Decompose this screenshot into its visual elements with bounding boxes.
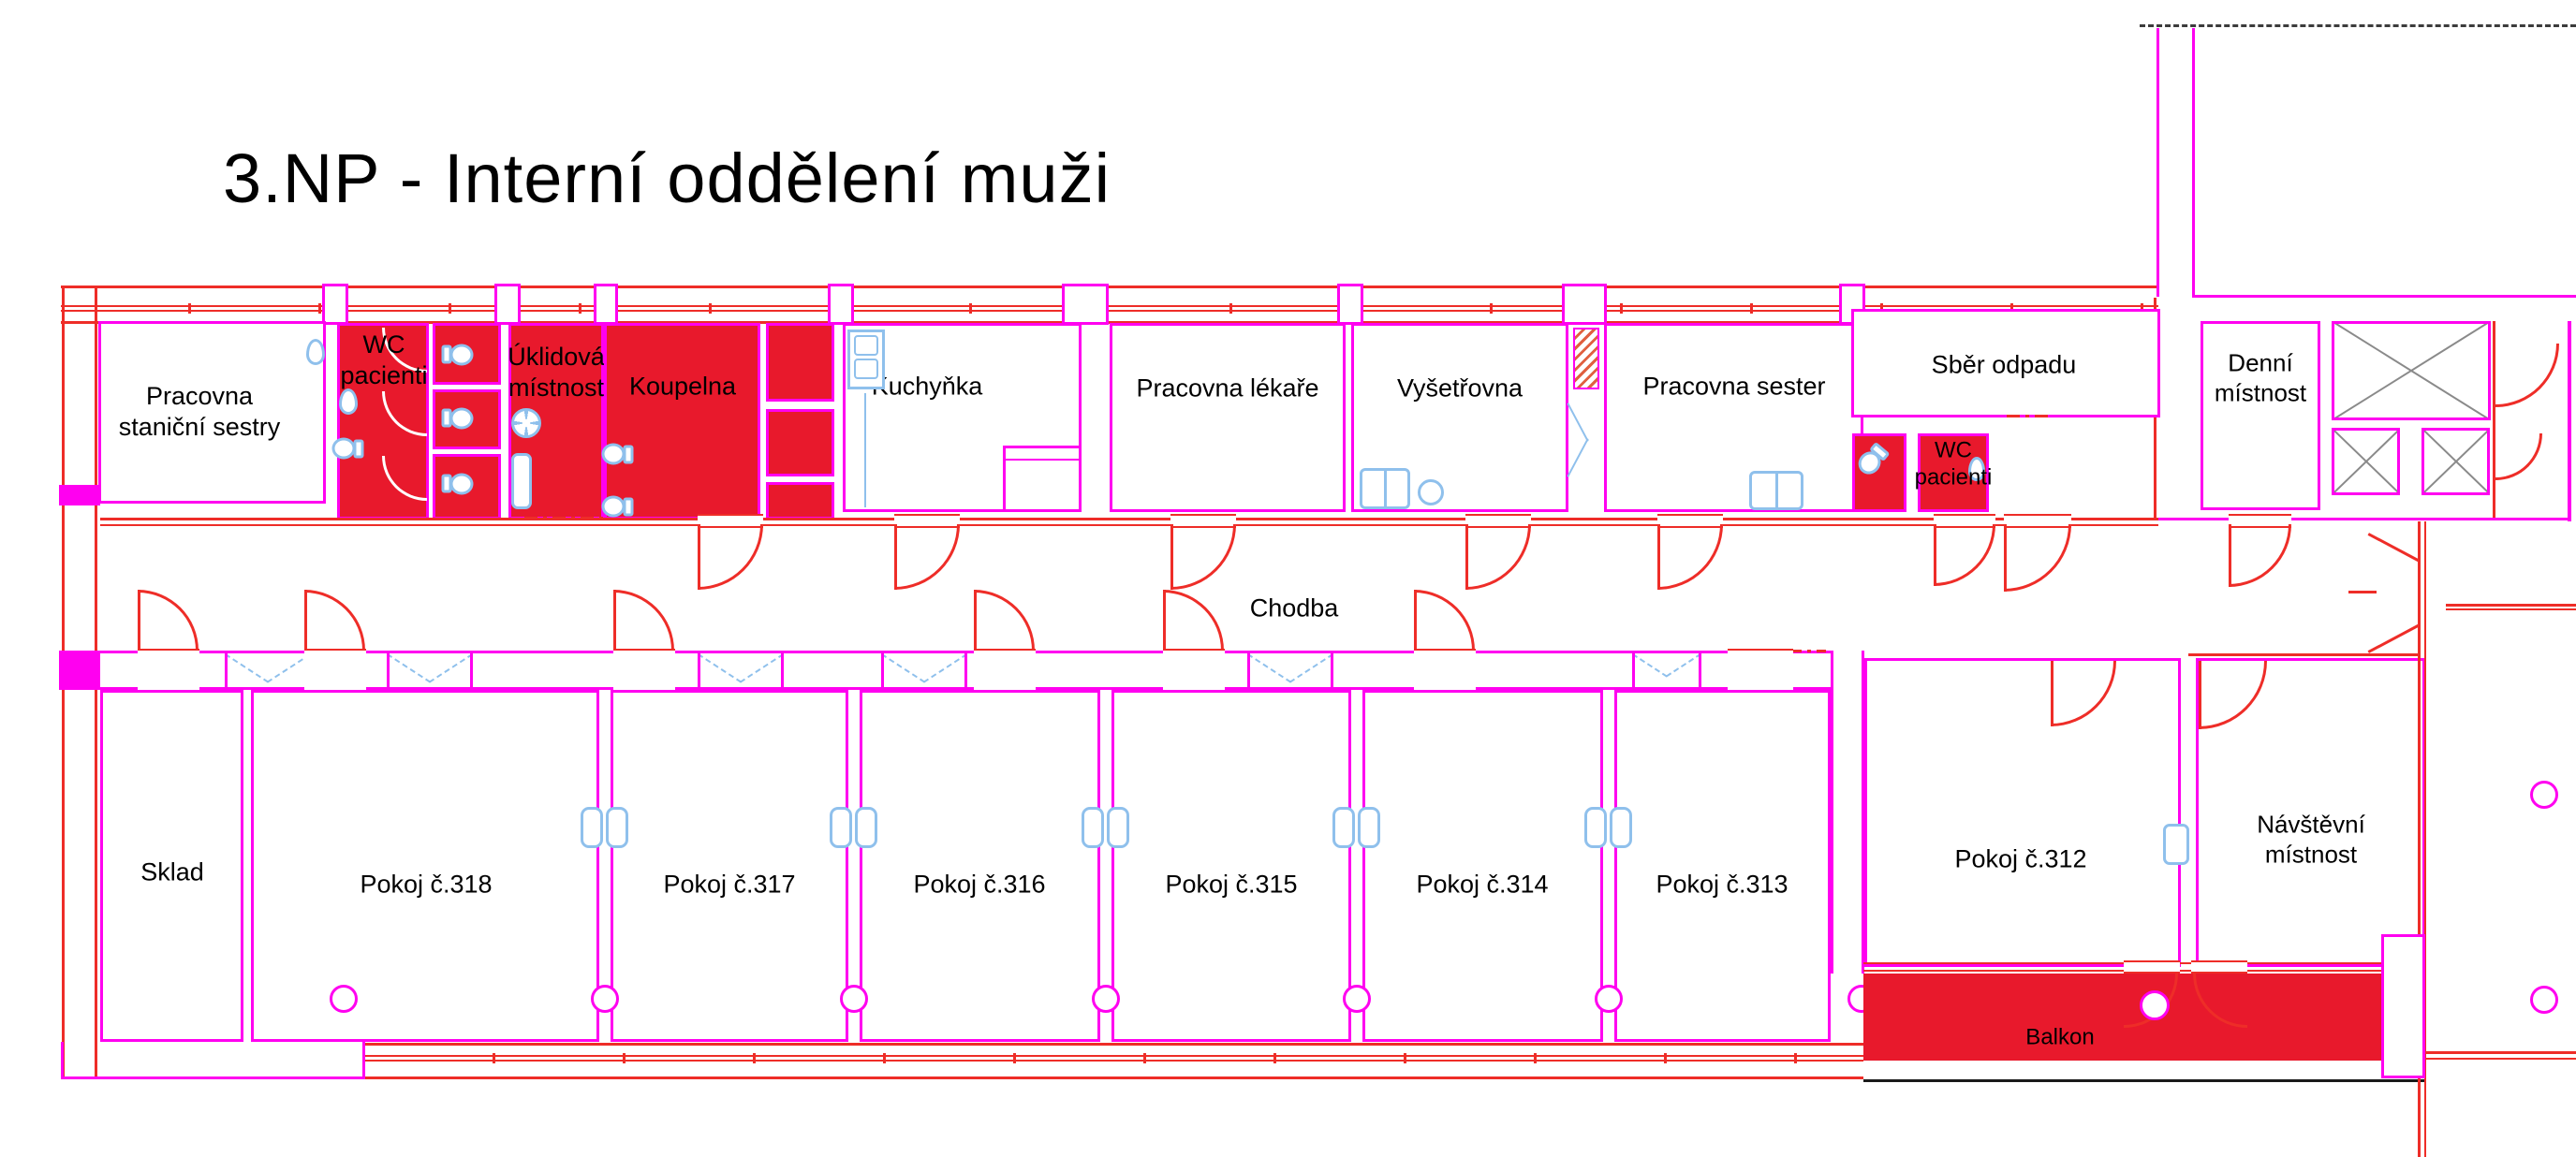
toilet-icon [442, 344, 474, 366]
room-pokoj-315 [1111, 690, 1351, 1042]
room-label-wc-pacienti-east: WC pacienti [1908, 437, 1998, 492]
door-opening [613, 649, 675, 692]
section-boundary-dashed-line [2140, 24, 2576, 27]
room-label-pokoj-313: Pokoj č.313 [1656, 870, 1788, 901]
door-arc [1465, 524, 1531, 590]
door-opening [138, 649, 199, 692]
wall-sink-icon [339, 388, 358, 415]
room-pokoj-317 [611, 690, 848, 1042]
passage-wall [1831, 651, 1833, 974]
south-west-corner-wall [61, 1076, 365, 1079]
wall-sink-icon [306, 339, 325, 365]
door-arc [1934, 524, 1995, 586]
cabinet-line [1567, 403, 1588, 442]
column-icon [2530, 781, 2558, 809]
toilet-icon [602, 496, 634, 518]
toilet-icon [442, 408, 474, 430]
door-leaf [698, 524, 700, 590]
counter-edge-line [1003, 459, 1082, 461]
door-leaf [613, 590, 616, 651]
room-pokoj-318 [251, 690, 599, 1042]
door-arc [2229, 524, 2291, 587]
column-icon [1595, 985, 1623, 1013]
door-arc [2495, 344, 2559, 407]
terrace-line [2425, 1058, 2576, 1060]
room-label-pokoj-314: Pokoj č.314 [1416, 870, 1548, 901]
balcony-door-opening [2191, 960, 2247, 974]
room-pokoj-313 [1614, 690, 1831, 1042]
door-arc [1163, 590, 1224, 651]
room-label-pokoj-316: Pokoj č.316 [913, 870, 1045, 901]
door-opening [1163, 649, 1225, 692]
column-icon [2140, 990, 2170, 1020]
door-leaf [1657, 524, 1660, 590]
transom-window [1247, 651, 1333, 690]
door-opening [1414, 649, 1476, 692]
corridor-north-wall [100, 518, 2158, 520]
balcony-door-opening [2124, 960, 2180, 974]
door-leaf [2004, 524, 2007, 592]
door-leaf [1170, 524, 1173, 590]
counter-centerline [864, 393, 866, 507]
column-icon [1092, 985, 1120, 1013]
room-pokoj-312 [1864, 658, 2181, 967]
door-leaf [138, 590, 140, 651]
door-arc [2495, 433, 2542, 480]
room-pokoj-316 [860, 690, 1100, 1042]
shower-stall [766, 482, 834, 520]
door-arc [1414, 590, 1475, 651]
room-label-denni-mistnost: Denní místnost [2209, 348, 2312, 407]
room-label-sber-odpadu: Sběr odpadu [1932, 350, 2077, 381]
toilet-icon [332, 438, 364, 460]
elevator-shaft-small [2332, 428, 2400, 495]
wall-line [2188, 653, 2418, 656]
service-corridor-wall [2192, 28, 2195, 297]
door-arc [1170, 524, 1236, 590]
room-pracovna-sester [1604, 323, 1863, 512]
floor-drain-icon [511, 408, 541, 438]
landing-line [2446, 608, 2576, 610]
transom-window [1632, 651, 1701, 690]
room-label-pracovna-stanicni-sestry: Pracovna staniční sestry [101, 381, 298, 443]
door-arc [698, 524, 763, 590]
column-icon [840, 985, 868, 1013]
door-arc [974, 590, 1035, 651]
transom-window [387, 651, 473, 690]
exam-couch-icon [1360, 468, 1410, 509]
double-basin-icon [581, 807, 628, 848]
room-label-sklad: Sklad [140, 857, 204, 888]
door-opening [304, 649, 366, 692]
room-label-navstevni-mistnost: Návštěvní místnost [2241, 810, 2381, 869]
wall-pier [1062, 284, 1109, 325]
service-corridor-wall [2156, 28, 2159, 297]
toilet-icon [602, 444, 634, 465]
door-leaf [1465, 524, 1468, 590]
elevator-shaft-large [2332, 321, 2491, 420]
room-pracovna-lekare [1110, 323, 1346, 512]
door-leaf [894, 524, 897, 590]
room-koupelna [604, 323, 760, 520]
balcony-deck [1863, 974, 2381, 1061]
door-arc [304, 590, 365, 651]
room-label-pokoj-315: Pokoj č.315 [1165, 870, 1297, 901]
wall-sink-icon [2163, 824, 2189, 865]
balcony-wall-line [1863, 970, 2381, 972]
kitchen-counter [1003, 446, 1082, 512]
door-leaf [974, 590, 977, 651]
room-label-pokoj-312: Pokoj č.312 [1954, 844, 2086, 875]
wall-pier [594, 284, 618, 325]
door-leaf [1934, 524, 1936, 586]
wall-pier [494, 284, 521, 325]
wall-pier [322, 284, 348, 325]
landing-line [2446, 604, 2576, 607]
room-pokoj-314 [1362, 690, 1603, 1042]
door-leaf [2199, 661, 2201, 729]
double-door-leaf [2368, 533, 2421, 563]
north-east-wall [2192, 295, 2576, 298]
terrace-line [2425, 1051, 2576, 1054]
east-wall [2568, 321, 2571, 521]
room-label-koupelna: Koupelna [629, 372, 736, 403]
south-west-corner-wall [61, 1042, 64, 1079]
double-basin-icon [1584, 807, 1632, 848]
utility-sink-icon [511, 453, 532, 509]
transom-window [881, 651, 967, 690]
room-label-pracovna-sester: Pracovna sester [1642, 372, 1825, 403]
elevator-shaft-small [2421, 428, 2490, 495]
door-leaf [304, 590, 307, 651]
shower-stall [766, 323, 834, 402]
door-opening [1728, 649, 1793, 692]
door-leaf [2051, 661, 2053, 726]
room-label-wc-pacienti-west: WC pacienti [332, 330, 435, 391]
room-label-pokoj-317: Pokoj č.317 [663, 870, 795, 901]
double-door-axis [2348, 591, 2377, 593]
double-basin-icon [1082, 807, 1129, 848]
stair-connection [2381, 934, 2425, 1078]
door-arc [894, 524, 960, 590]
door-arc [1657, 524, 1723, 590]
door-leaf [2229, 524, 2231, 587]
room-label-vysetrovna: Vyšetřovna [1397, 373, 1523, 404]
kitchen-sink-icon [847, 330, 885, 389]
double-basin-icon [830, 807, 877, 848]
room-label-balkon: Balkon [2025, 1023, 2094, 1050]
floor-plan: 3.NP - Interní oddělení muži Pracovna st… [0, 0, 2576, 1157]
room-label-pracovna-lekare: Pracovna lékaře [1136, 373, 1318, 404]
door-arc [613, 590, 674, 651]
wall-dash-dot [524, 517, 609, 520]
door-leaf [1163, 590, 1166, 651]
wall-pier [828, 284, 854, 325]
wall-pier [1562, 284, 1607, 325]
room-label-uklidova-mistnost: Úklidová místnost [506, 342, 607, 403]
corridor-north-wall-east [2158, 518, 2570, 520]
door-opening [974, 649, 1036, 692]
stool-icon [1418, 479, 1444, 505]
door-arc [2004, 524, 2071, 592]
wall-dash-dot [2007, 415, 2050, 417]
column-icon [1343, 985, 1371, 1013]
south-wall-inner-line [365, 1043, 1863, 1046]
cabinet-line [1567, 438, 1588, 477]
room-label-pokoj-318: Pokoj č.318 [360, 870, 492, 901]
double-basin-icon [1332, 807, 1380, 848]
south-wall-outer-line [365, 1076, 1863, 1079]
wall-pier [1337, 284, 1363, 325]
room-label-kuchynka: Kuchyňka [872, 372, 983, 403]
south-window-mullions [365, 1053, 1863, 1063]
sofa-icon [1749, 471, 1803, 510]
column-icon [2530, 986, 2558, 1014]
column-icon [591, 985, 619, 1013]
transom-window [698, 651, 784, 690]
door-arc [138, 590, 199, 651]
duct-shaft-hatch [1573, 328, 1599, 389]
corridor-north-wall-line [100, 524, 2158, 526]
column-icon [330, 985, 358, 1013]
door-leaf [1414, 590, 1417, 651]
balcony-wall-line [1863, 962, 2381, 964]
transom-window [225, 651, 311, 690]
wall-joint [59, 485, 100, 505]
wall-joint [59, 651, 100, 690]
toilet-icon [442, 474, 474, 495]
balcony-edge-line [1863, 1079, 2425, 1082]
room-label-chodba: Chodba [1250, 593, 1339, 624]
shower-stall [766, 409, 834, 476]
double-door-leaf [2368, 623, 2421, 653]
page-title: 3.NP - Interní oddělení muži [223, 139, 1111, 218]
